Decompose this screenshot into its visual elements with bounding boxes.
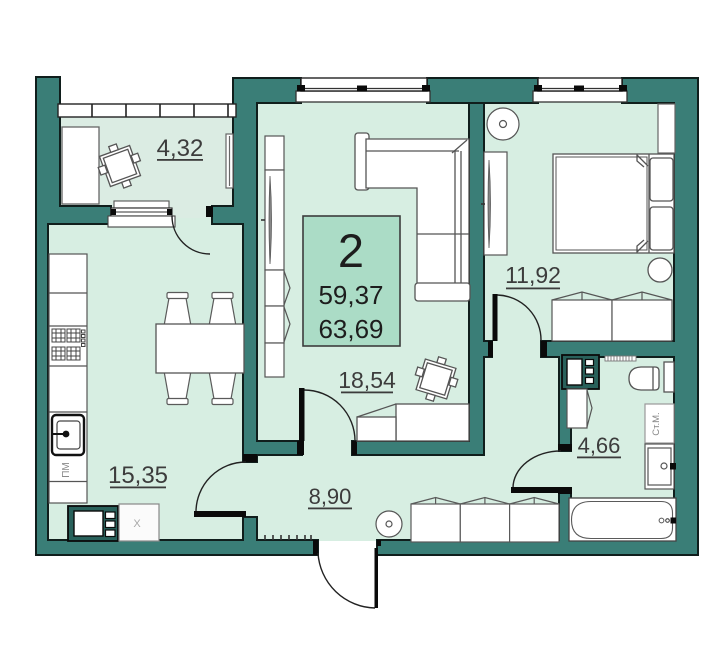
svg-text:8,90: 8,90 — [309, 484, 352, 509]
svg-text:4,32: 4,32 — [157, 135, 204, 162]
svg-text:Ст.М.: Ст.М. — [651, 412, 662, 435]
svg-text:11,92: 11,92 — [505, 262, 561, 288]
svg-text:X: X — [133, 518, 141, 530]
svg-text:59,37: 59,37 — [318, 280, 383, 310]
svg-text:4,66: 4,66 — [578, 433, 621, 458]
svg-text:2: 2 — [338, 224, 364, 277]
svg-text:15,35: 15,35 — [108, 462, 168, 489]
svg-text:18,54: 18,54 — [338, 367, 396, 393]
svg-text:63,69: 63,69 — [318, 314, 383, 344]
svg-text:ПМ: ПМ — [61, 462, 72, 478]
